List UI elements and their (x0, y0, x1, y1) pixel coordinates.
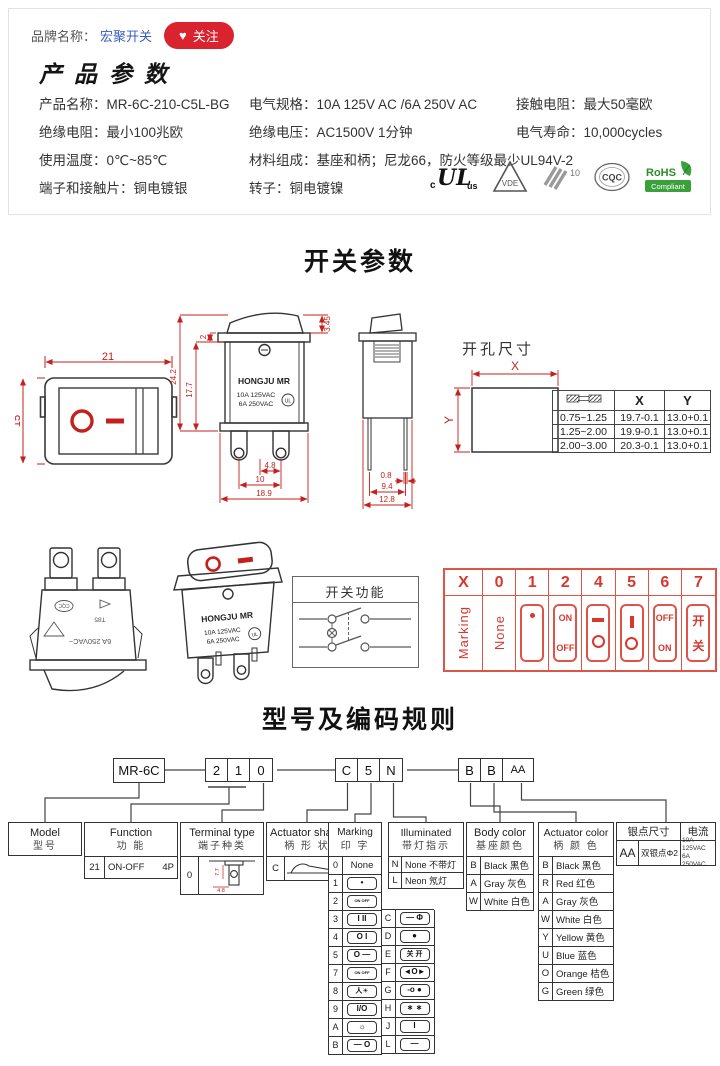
product-info-card: 品牌名称： 宏聚开关 ♥ 关注 产品参数 产品名称：MR-6C-210-C5L-… (8, 8, 711, 215)
silver-current-cell: 10A 125VAC6A 250VAC (681, 841, 715, 865)
marking-row: E关 开 (382, 945, 434, 963)
svg-text:UL: UL (285, 399, 292, 405)
svg-text:4.8: 4.8 (217, 888, 225, 893)
svg-text:UL: UL (251, 632, 258, 639)
rocker-off-ring (72, 411, 92, 431)
code-segment-function: 2 1 0 (205, 758, 273, 782)
panel-thickness-icon (566, 393, 602, 405)
brand-link[interactable]: 宏聚开关 (100, 26, 152, 45)
dim-protrude: 3.45 (323, 316, 332, 332)
marking-options-strip: X 0 1 2 4 5 6 7 Marking None ONOFF OFFON… (443, 568, 717, 672)
actuator-color-row: WWhite 白色 (539, 910, 613, 928)
spec-temperature: 使用温度：0℃~85℃ (39, 149, 167, 169)
dim-width-label: 21 (102, 352, 114, 363)
heart-icon: ♥ (179, 28, 187, 43)
svg-text:VDE: VDE (502, 179, 518, 188)
marking-row: F◄O► (382, 963, 434, 981)
body-color-row: BBlack 黑色 (467, 856, 533, 874)
switch-perspective-illustration: HONGJU MR 10A 125VAC 6A 250VAC UL (158, 532, 296, 700)
strip-header-x: X (445, 570, 483, 596)
dim-flange: 2 (199, 334, 208, 339)
marking-row: 4O I (329, 928, 381, 946)
ring-glyph (592, 635, 605, 648)
rocker-off-ring (206, 557, 220, 571)
side-view-drawing: HONGJU MR 10A 125VAC 6A 250VAC UL 3.45 2… (170, 293, 338, 520)
product-params-title: 产品参数 (39, 55, 179, 89)
marking-row: B— O (329, 1036, 381, 1054)
hole-dimensions (454, 370, 558, 452)
marking-row: 5O — (329, 946, 381, 964)
front-view-drawing: 21 15 (15, 352, 180, 470)
function-box-title: 开关功能 (293, 577, 418, 603)
strip-marking-label: Marking (445, 596, 483, 670)
actuator-color-row: RRed 红色 (539, 874, 613, 892)
dim-pin-span: 9.4 (381, 482, 393, 491)
actuator-color-row: AGray 灰色 (539, 892, 613, 910)
table-row: 2.00~3.00 20.3-0.1 13.0+0.1 (553, 439, 711, 453)
marking-row: 1• (329, 874, 381, 892)
rohs-cert-icon: RoHS Compliant (643, 159, 695, 195)
body-color-row: AGray 灰色 (467, 874, 533, 892)
marking-row: 3I II (329, 910, 381, 928)
leaf-icon (681, 161, 691, 176)
marking-row: D● (382, 927, 434, 945)
ring-glyph (625, 637, 638, 650)
svg-text:CQC: CQC (602, 173, 623, 183)
silver-value-row: AA 双银点Φ2 10A 125VAC6A 250VAC (617, 840, 715, 865)
spec-insulation-resistance: 绝缘电阻：最小100兆欧 (39, 121, 183, 141)
coding-rules-title: 型号及编码规则 (0, 700, 720, 736)
col-y-header: Y (665, 391, 711, 411)
t85-marking: T85 (94, 616, 106, 623)
model-code-box: MR-6C (113, 758, 165, 783)
rating1-marking: 10A 125VAC (237, 392, 276, 399)
dim-height-label: 15 (15, 415, 23, 427)
body-color-row: WWhite 白色 (467, 892, 533, 910)
spec-electrical-rating: 电气规格：10A 125V AC /6A 250V AC (249, 93, 477, 113)
strip-none-label: None (483, 596, 516, 670)
spec-electrical-life: 电气寿命：10,000cycles (516, 121, 662, 141)
switch-end-outline (359, 314, 416, 470)
illuminated-category-box: Illuminated带灯指示 NNone 不带灯 LNeon 氖灯 (388, 822, 464, 889)
cqc-cert-icon: CQC (592, 159, 632, 195)
terminal-drawing: 7.7 4.8 (199, 857, 261, 893)
panel-thickness-cell (553, 391, 615, 411)
rocker-top (186, 541, 273, 582)
actuator-color-row: OOrange 桔色 (539, 964, 613, 982)
hole-size-table: X Y 0.75~1.25 19.7-0.1 13.0+0.1 1.25~2.0… (552, 390, 711, 453)
switch-params-title: 开关参数 (0, 242, 720, 278)
dim-width: 12.8 (379, 495, 395, 504)
svg-text:c: c (430, 180, 436, 191)
actuator-color-row: UBlue 蓝色 (539, 946, 613, 964)
marking-category-box-2: C— Φ D● E关 开 F◄O► G-o ● H∗ ∗ JI L— (381, 910, 435, 1054)
svg-text:us: us (467, 181, 478, 191)
bar-glyph (592, 618, 604, 622)
marking-category-box: Marking印 字 0None 1• 2ON OFF 3I II 4O I 5… (328, 822, 382, 1055)
svg-text:7.7: 7.7 (215, 868, 221, 876)
model-category-box: Model型号 (8, 822, 82, 856)
code-segment-style: C 5 N (335, 758, 403, 782)
end-view-drawing: 0.8 9.4 12.8 (338, 300, 438, 513)
marking-row: 8人☀ (329, 982, 381, 1000)
terminal-category-box: Terminal type端子种类 0 7.7 4.8 (180, 822, 264, 895)
product-page: { "colors": { "accent_red":"#c4201d", "s… (0, 0, 720, 1066)
rating2-marking: 6A 250VAC (206, 636, 240, 646)
spec-contact-resistance: 接触电阻：最大50毫欧 (516, 93, 653, 113)
svg-text:10: 10 (570, 168, 580, 178)
circuit-diagram (293, 603, 417, 665)
marking-row: JI (382, 1017, 434, 1035)
certification-icons: c UL us VDE 10 CQC RoHS Compliant (429, 159, 695, 195)
marking-row: G-o ● (382, 981, 434, 999)
dim-pin-w: 0.8 (380, 471, 392, 480)
actuator-color-row: YYellow 黄色 (539, 928, 613, 946)
brand-bar: 品牌名称： 宏聚开关 ♥ 关注 (31, 22, 234, 49)
spec-terminal-plating: 端子和接触片：铜电镀银 (39, 177, 188, 197)
rocker-on-bar (238, 557, 253, 564)
marking-row: H∗ ∗ (382, 999, 434, 1017)
table-row: 0.75~1.25 19.7-0.1 13.0+0.1 (553, 411, 711, 425)
bottom-certification-marks: CQC T85 6A 250VAC~ (44, 600, 111, 646)
marking-option-4 (582, 596, 615, 670)
marking-row: 2ON OFF (329, 892, 381, 910)
actuator-color-row: GGreen 绿色 (539, 982, 613, 1000)
cutout-rect (472, 388, 558, 452)
marking-option-5 (616, 596, 649, 670)
table-row: 1.25~2.00 19.9-0.1 13.0+0.1 (553, 425, 711, 439)
hole-cutout-drawing: X Y (442, 358, 570, 468)
rating-marking: 6A 250VAC~ (68, 637, 111, 646)
dim-pin-gap: 4.8 (264, 461, 276, 470)
illuminated-row: NNone 不带灯 (389, 856, 463, 872)
marking-row: 7ON OFF (329, 964, 381, 982)
vde-cert-icon: VDE (492, 159, 528, 195)
ul-mini-mark: UL (282, 394, 294, 406)
marking-row: C— Φ (382, 909, 434, 927)
marking-option-2: ONOFF (549, 596, 582, 670)
svg-text:RoHS: RoHS (646, 167, 676, 179)
svg-text:Compliant: Compliant (651, 182, 686, 191)
brand-label: 品牌名称： (31, 26, 96, 45)
marking-row: L— (382, 1035, 434, 1053)
body-color-category-box: Body color基座颜色 BBlack 黑色 AGray 灰色 WWhite… (466, 822, 534, 911)
switch-side-outline (218, 313, 310, 460)
brand-marking: HONGJU MR (238, 376, 290, 386)
function-row: 21 ON-OFF4P (85, 856, 177, 878)
hole-x-label: X (511, 359, 519, 373)
follow-label: 关注 (193, 26, 219, 45)
switch-bottom-illustration: CQC T85 6A 250VAC~ (12, 540, 162, 698)
follow-button[interactable]: ♥ 关注 (164, 22, 234, 49)
rating2-marking: 6A 250VAC (239, 401, 274, 408)
k10-cert-icon: 10 (539, 159, 581, 195)
actuator-color-category-box: Actuator color柄 颜 色 BBlack 黑色 RRed 红色 AG… (538, 822, 614, 1001)
col-x-header: X (615, 391, 665, 411)
ul-cert-icon: c UL us (429, 159, 481, 195)
switch-function-box: 开关功能 (292, 576, 419, 668)
marking-option-7: 开关 (682, 596, 715, 670)
hole-size-title: 开孔尺寸 (462, 338, 534, 359)
dot-glyph (530, 613, 535, 618)
spec-rotor-plating: 转子：铜电镀镍 (249, 177, 344, 197)
dim-total-h: 24.2 (170, 369, 178, 385)
marking-row: 9I/O (329, 1000, 381, 1018)
marking-option-1 (516, 596, 549, 670)
marking-row: A☼ (329, 1018, 381, 1036)
side-dimensions (180, 315, 328, 503)
marking-option-6: OFFON (649, 596, 682, 670)
bar-glyph (630, 616, 634, 628)
hole-y-label: Y (442, 416, 456, 424)
code-segment-color: B B AA (458, 758, 534, 782)
dim-pin-span: 10 (256, 475, 265, 484)
spec-product-name: 产品名称：MR-6C-210-C5L-BG (39, 93, 230, 113)
svg-text:CQC: CQC (58, 602, 70, 608)
rocker-on-bar (106, 419, 124, 424)
illuminated-row: LNeon 氖灯 (389, 872, 463, 888)
marking-row: 0None (329, 856, 381, 874)
coding-diagram: MR-6C 2 1 0 C 5 N B B AA Model型号 Functio… (0, 740, 720, 1066)
brand-marking: HONGJU MR (201, 610, 254, 624)
actuator-color-row: BBlack 黑色 (539, 856, 613, 874)
dim-body-h: 17.7 (185, 382, 194, 398)
terminal-row: 0 7.7 4.8 (181, 856, 263, 894)
silver-point-category-box: 银点尺寸 电流 AA 双银点Φ2 10A 125VAC6A 250VAC (616, 822, 716, 866)
dim-width: 18.9 (256, 489, 272, 498)
spec-dielectric: 绝缘电压：AC1500V 1分钟 (249, 121, 413, 141)
function-category-box: Function功 能 21 ON-OFF4P (84, 822, 178, 879)
